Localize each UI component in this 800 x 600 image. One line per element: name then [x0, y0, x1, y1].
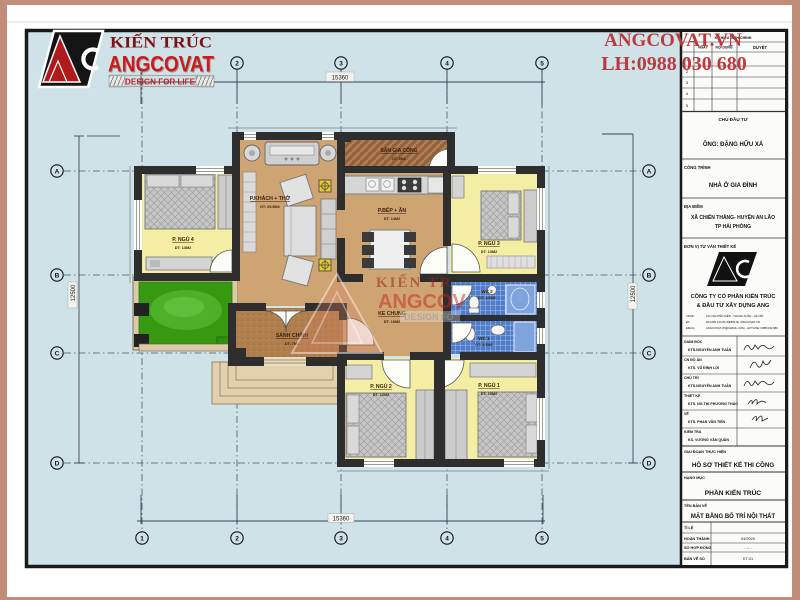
svg-text:THIẾT KẾ: THIẾT KẾ — [684, 393, 701, 398]
svg-text:P.KHÁCH + THỜ: P.KHÁCH + THỜ — [250, 194, 291, 202]
svg-text:KIẾN TRÚC: KIẾN TRÚC — [110, 33, 212, 52]
svg-text:DT: 4.5M2: DT: 4.5M2 — [478, 296, 496, 300]
svg-text:SÂN GIA CÔNG: SÂN GIA CÔNG — [380, 146, 417, 154]
svg-text:ĐT:: ĐT: — [686, 320, 690, 324]
svg-text:DT: 16M2: DT: 16M2 — [481, 392, 497, 396]
svg-text:DESIGN FOR LIFE: DESIGN FOR LIFE — [125, 78, 196, 87]
svg-text:A: A — [647, 169, 652, 176]
svg-text:DT: 13M2: DT: 13M2 — [481, 250, 497, 254]
svg-text:5: 5 — [540, 536, 544, 543]
svg-text:4: 4 — [445, 536, 449, 543]
svg-text:KS. VƯƠNG VĂN QUÂN: KS. VƯƠNG VĂN QUÂN — [688, 437, 729, 442]
svg-text:CHỦ TRÌ: CHỦ TRÌ — [684, 375, 699, 380]
svg-text:ĐƠN VỊ TƯ VẤN THIẾT KẾ: ĐƠN VỊ TƯ VẤN THIẾT KẾ — [684, 244, 736, 249]
svg-text:DT: 10M2: DT: 10M2 — [384, 320, 400, 324]
svg-text:ANGCOVAT: ANGCOVAT — [108, 52, 214, 77]
svg-text:GIAI ĐOẠN THỰC HIỆN: GIAI ĐOẠN THỰC HIỆN — [684, 449, 726, 454]
svg-text:NHÀ Ở GIA ĐÌNH: NHÀ Ở GIA ĐÌNH — [709, 181, 757, 189]
svg-text:12500: 12500 — [631, 285, 637, 302]
svg-text:DUYỆT: DUYỆT — [753, 45, 768, 50]
svg-text:EMAIL:: EMAIL: — [686, 326, 695, 330]
svg-text:CHỦ ĐẦU TƯ: CHỦ ĐẦU TƯ — [718, 116, 747, 122]
svg-text:WC 1: WC 1 — [478, 336, 490, 341]
svg-text:TÊN BẢN VẼ: TÊN BẢN VẼ — [684, 503, 707, 508]
svg-text:TP HẢI PHÒNG: TP HẢI PHÒNG — [715, 222, 751, 230]
svg-text:KTS. NG.THỊ PHƯƠNG THẢO: KTS. NG.THỊ PHƯƠNG THẢO — [688, 401, 738, 406]
svg-text:P. NGỦ 1: P. NGỦ 1 — [478, 382, 500, 389]
svg-text:04/2020: 04/2020 — [741, 537, 755, 541]
svg-text:HỒ SƠ THIẾT KẾ THI CÔNG: HỒ SƠ THIẾT KẾ THI CÔNG — [692, 461, 774, 469]
svg-text:MẶT BẰNG BỐ TRÍ NỘI THẤT: MẶT BẰNG BỐ TRÍ NỘI THẤT — [691, 512, 776, 520]
svg-text:GIÁM ĐỐC: GIÁM ĐỐC — [684, 339, 703, 344]
svg-text:HẠNG MỤC: HẠNG MỤC — [684, 476, 705, 480]
svg-text:ANGCOV: ANGCOV — [378, 291, 466, 313]
svg-text:B: B — [647, 273, 652, 280]
svg-text:CN ĐỒ ÁN: CN ĐỒ ÁN — [684, 357, 702, 362]
svg-text:CÔNG TY CỔ PHẦN KIẾN TRÚC: CÔNG TY CỔ PHẦN KIẾN TRÚC — [691, 292, 776, 300]
svg-text:15360: 15360 — [333, 517, 350, 523]
svg-text:B: B — [55, 273, 60, 280]
svg-text:2: 2 — [235, 61, 239, 68]
svg-text:3: 3 — [339, 536, 343, 543]
svg-text:VPGD:: VPGD: — [686, 314, 695, 318]
svg-text:121 NGUYỄN XIỂN - THANH XUÂN -: 121 NGUYỄN XIỂN - THANH XUÂN - HÀ NỘI — [706, 313, 764, 318]
svg-text:D: D — [647, 461, 652, 468]
svg-text:XÃ CHIẾN THẮNG- HUYỆN AN LÃO: XÃ CHIẾN THẮNG- HUYỆN AN LÃO — [691, 213, 775, 221]
svg-text:.. -- ..: .. -- .. — [744, 546, 753, 550]
svg-text:024.666.222.84 WEBSITE: ANGCO: 024.666.222.84 WEBSITE: ANGCOVAT.VN — [706, 320, 760, 324]
svg-text:ANGCOVAT.VN@GMAIL.COM - HOTLIN: ANGCOVAT.VN@GMAIL.COM - HOTLINE: 0988.03… — [706, 326, 778, 330]
svg-text:A: A — [55, 169, 60, 176]
svg-text:DT: 5M2: DT: 5M2 — [392, 157, 406, 161]
svg-text:DT: 13M2: DT: 13M2 — [175, 246, 191, 250]
svg-text:SỐ HỢP ĐỒNG: SỐ HỢP ĐỒNG — [684, 545, 711, 550]
svg-text:DT: 25.5M2: DT: 25.5M2 — [260, 205, 280, 209]
svg-text:KTS. VŨ ĐÌNH LỢI: KTS. VŨ ĐÌNH LỢI — [688, 365, 719, 370]
svg-text:C: C — [647, 351, 652, 358]
svg-text:WC 2: WC 2 — [481, 289, 493, 294]
svg-text:12500: 12500 — [71, 284, 77, 301]
svg-text:KIẾN TR: KIẾN TR — [376, 274, 453, 291]
svg-text:KIỂM TRA: KIỂM TRA — [684, 429, 702, 434]
svg-text:P. NGỦ 3: P. NGỦ 3 — [478, 240, 500, 247]
svg-text:ĐỊA ĐIỂM: ĐỊA ĐIỂM — [684, 204, 703, 209]
svg-text:DT: 14M2: DT: 14M2 — [384, 217, 400, 221]
svg-text:ÔNG: ĐẶNG HỮU XÁ: ÔNG: ĐẶNG HỮU XÁ — [703, 140, 764, 148]
svg-text:KTS.NGUYỄN ANH TUẤN: KTS.NGUYỄN ANH TUẤN — [688, 347, 732, 352]
svg-text:KT-01: KT-01 — [743, 557, 753, 561]
svg-text:KTS. PHAN VĂN TIẾN: KTS. PHAN VĂN TIẾN — [688, 419, 726, 424]
svg-text:P.BẾP + ĂN: P.BẾP + ĂN — [378, 207, 406, 214]
svg-text:& ĐẦU TƯ XÂY DỰNG ANG: & ĐẦU TƯ XÂY DỰNG ANG — [697, 302, 770, 309]
svg-text:VẼ: VẼ — [684, 411, 689, 416]
svg-text:KTS.NGUYỄN ANH TUẤN: KTS.NGUYỄN ANH TUẤN — [688, 383, 732, 388]
svg-text:DT: 12M2: DT: 12M2 — [373, 393, 389, 397]
svg-text:DT: 4.5M2: DT: 4.5M2 — [475, 343, 493, 347]
svg-text:HOÀN THÀNH: HOÀN THÀNH — [684, 536, 710, 541]
svg-text:3: 3 — [339, 61, 343, 68]
svg-text:ANGCOVAT.VN: ANGCOVAT.VN — [604, 30, 742, 51]
svg-text:DESIGN FO: DESIGN FO — [404, 312, 454, 322]
svg-text:1: 1 — [140, 536, 144, 543]
svg-text:2: 2 — [235, 536, 239, 543]
svg-text:BẢN VẼ SỐ: BẢN VẼ SỐ — [684, 556, 705, 561]
svg-text:15360: 15360 — [332, 76, 349, 82]
svg-text:P. NGỦ 4: P. NGỦ 4 — [172, 236, 194, 243]
svg-text:TỈ LỆ: TỈ LỆ — [684, 525, 694, 530]
svg-text:LH:0988 030 680: LH:0988 030 680 — [601, 53, 747, 75]
svg-text:5: 5 — [540, 61, 544, 68]
svg-text:C: C — [55, 351, 60, 358]
svg-text:D: D — [55, 461, 60, 468]
svg-text:CÔNG TRÌNH: CÔNG TRÌNH — [684, 165, 711, 170]
svg-text:P. NGỦ 2: P. NGỦ 2 — [370, 383, 392, 390]
svg-text:4: 4 — [445, 61, 449, 68]
